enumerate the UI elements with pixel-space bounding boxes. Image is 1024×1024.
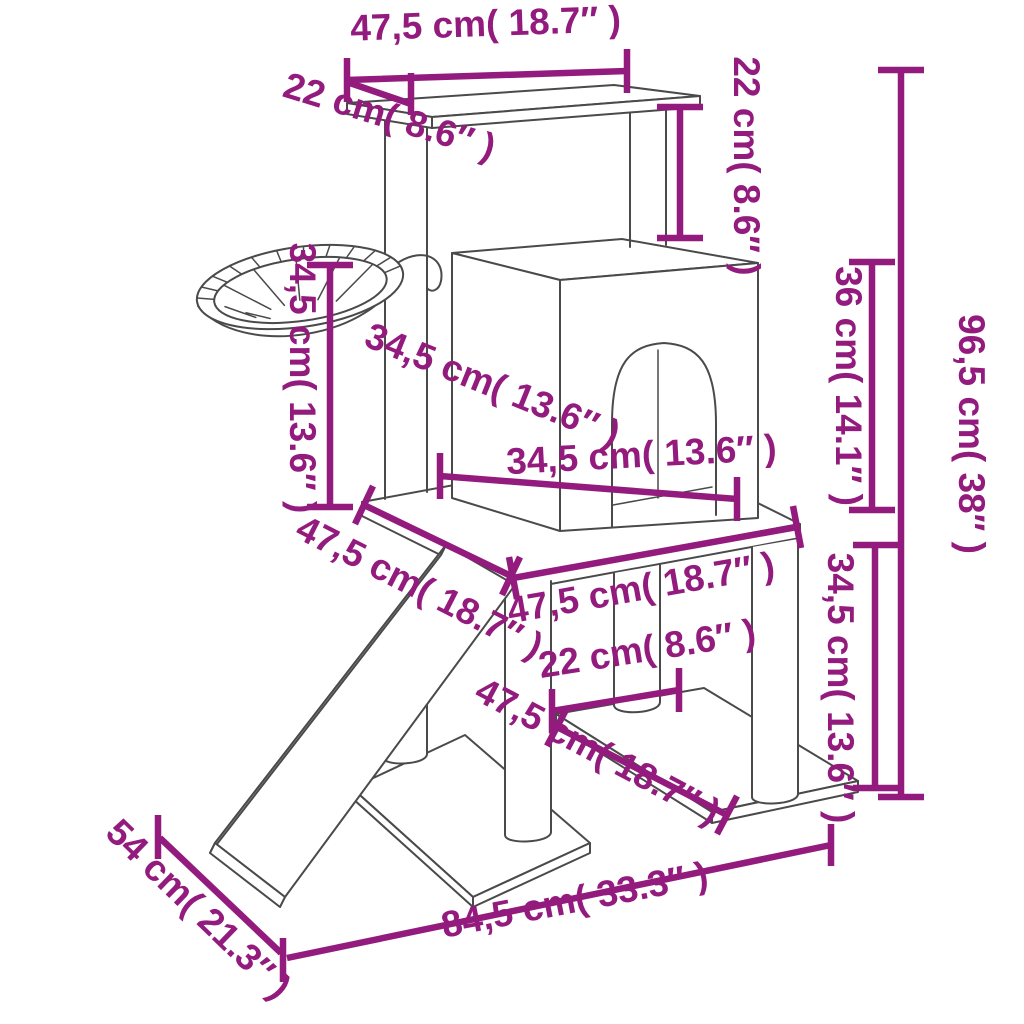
basket-mount-hook <box>399 255 441 291</box>
dim-line-total-height <box>878 70 924 797</box>
upper-right-post <box>630 97 666 247</box>
dim-label-lower-section-height: 34,5 cm( 13.6″ ) <box>820 553 861 824</box>
dim-label-house-height: 36 cm( 14.1″ ) <box>828 266 869 506</box>
dim-label-top-to-house-height: 22 cm( 8.6″ ) <box>726 56 767 275</box>
upper-left-post <box>385 118 427 499</box>
cat-tree-diagram-canvas: 47,5 cm( 18.7″ ) 22 cm( 8.6″ ) 22 cm( 8.… <box>0 0 1024 1024</box>
dim-label-top-platform-width: 47,5 cm( 18.7″ ) <box>350 0 622 49</box>
dim-label-total-height: 96,5 cm( 38″ ) <box>951 314 992 554</box>
dimension-diagram: 47,5 cm( 18.7″ ) 22 cm( 8.6″ ) 22 cm( 8.… <box>0 0 1024 1024</box>
dim-label-basket-height: 34,5 cm( 13.6″ ) <box>282 243 323 514</box>
dim-line-top-to-house-height <box>657 107 703 238</box>
